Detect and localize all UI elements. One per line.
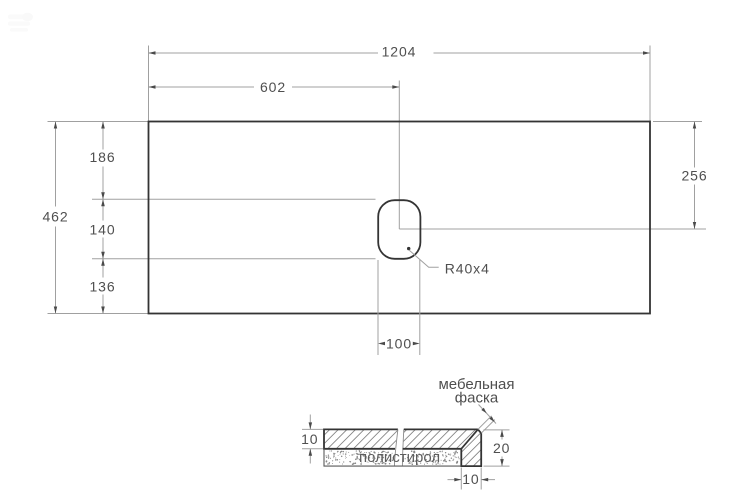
svg-text:462: 462 [42, 208, 68, 224]
svg-text:136: 136 [89, 278, 115, 294]
svg-text:10: 10 [301, 431, 318, 447]
svg-text:140: 140 [89, 221, 115, 237]
svg-text:186: 186 [89, 149, 115, 165]
svg-text:1204: 1204 [382, 43, 417, 59]
svg-text:256: 256 [681, 167, 707, 183]
svg-text:R40x4: R40x4 [445, 261, 490, 277]
svg-text:100: 100 [386, 335, 412, 351]
svg-text:фаска: фаска [455, 389, 499, 406]
svg-text:полистирол: полистирол [359, 449, 440, 466]
svg-text:10: 10 [462, 471, 479, 487]
svg-text:20: 20 [493, 440, 510, 456]
svg-text:602: 602 [260, 79, 286, 95]
